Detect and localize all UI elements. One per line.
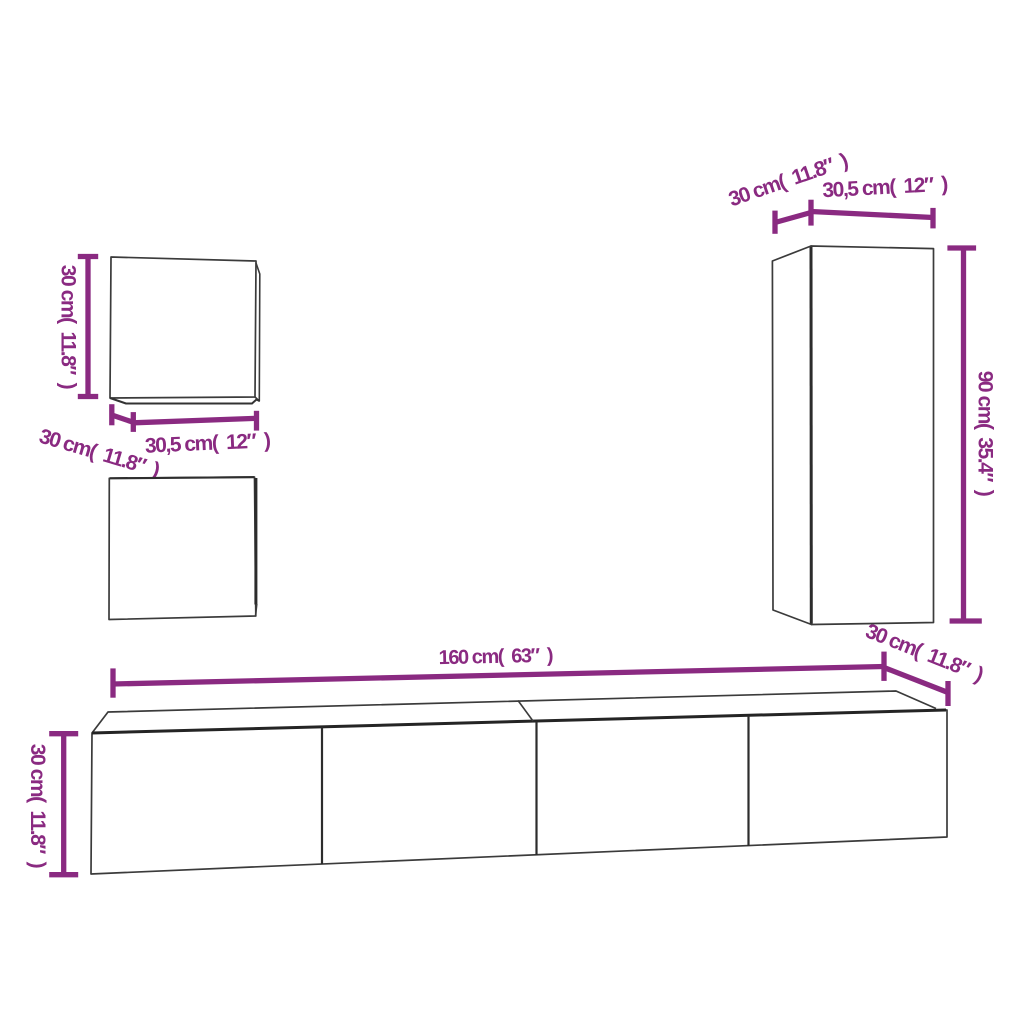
- svg-text:90 cm( 35.4″ ): 90 cm( 35.4″ ): [974, 371, 997, 496]
- svg-text:30 cm( 11.8″ ): 30 cm( 11.8″ ): [57, 265, 80, 389]
- svg-text:160 cm( 63″ ): 160 cm( 63″ ): [438, 645, 553, 670]
- svg-text:30 cm( 11.8″ ): 30 cm( 11.8″ ): [26, 744, 49, 868]
